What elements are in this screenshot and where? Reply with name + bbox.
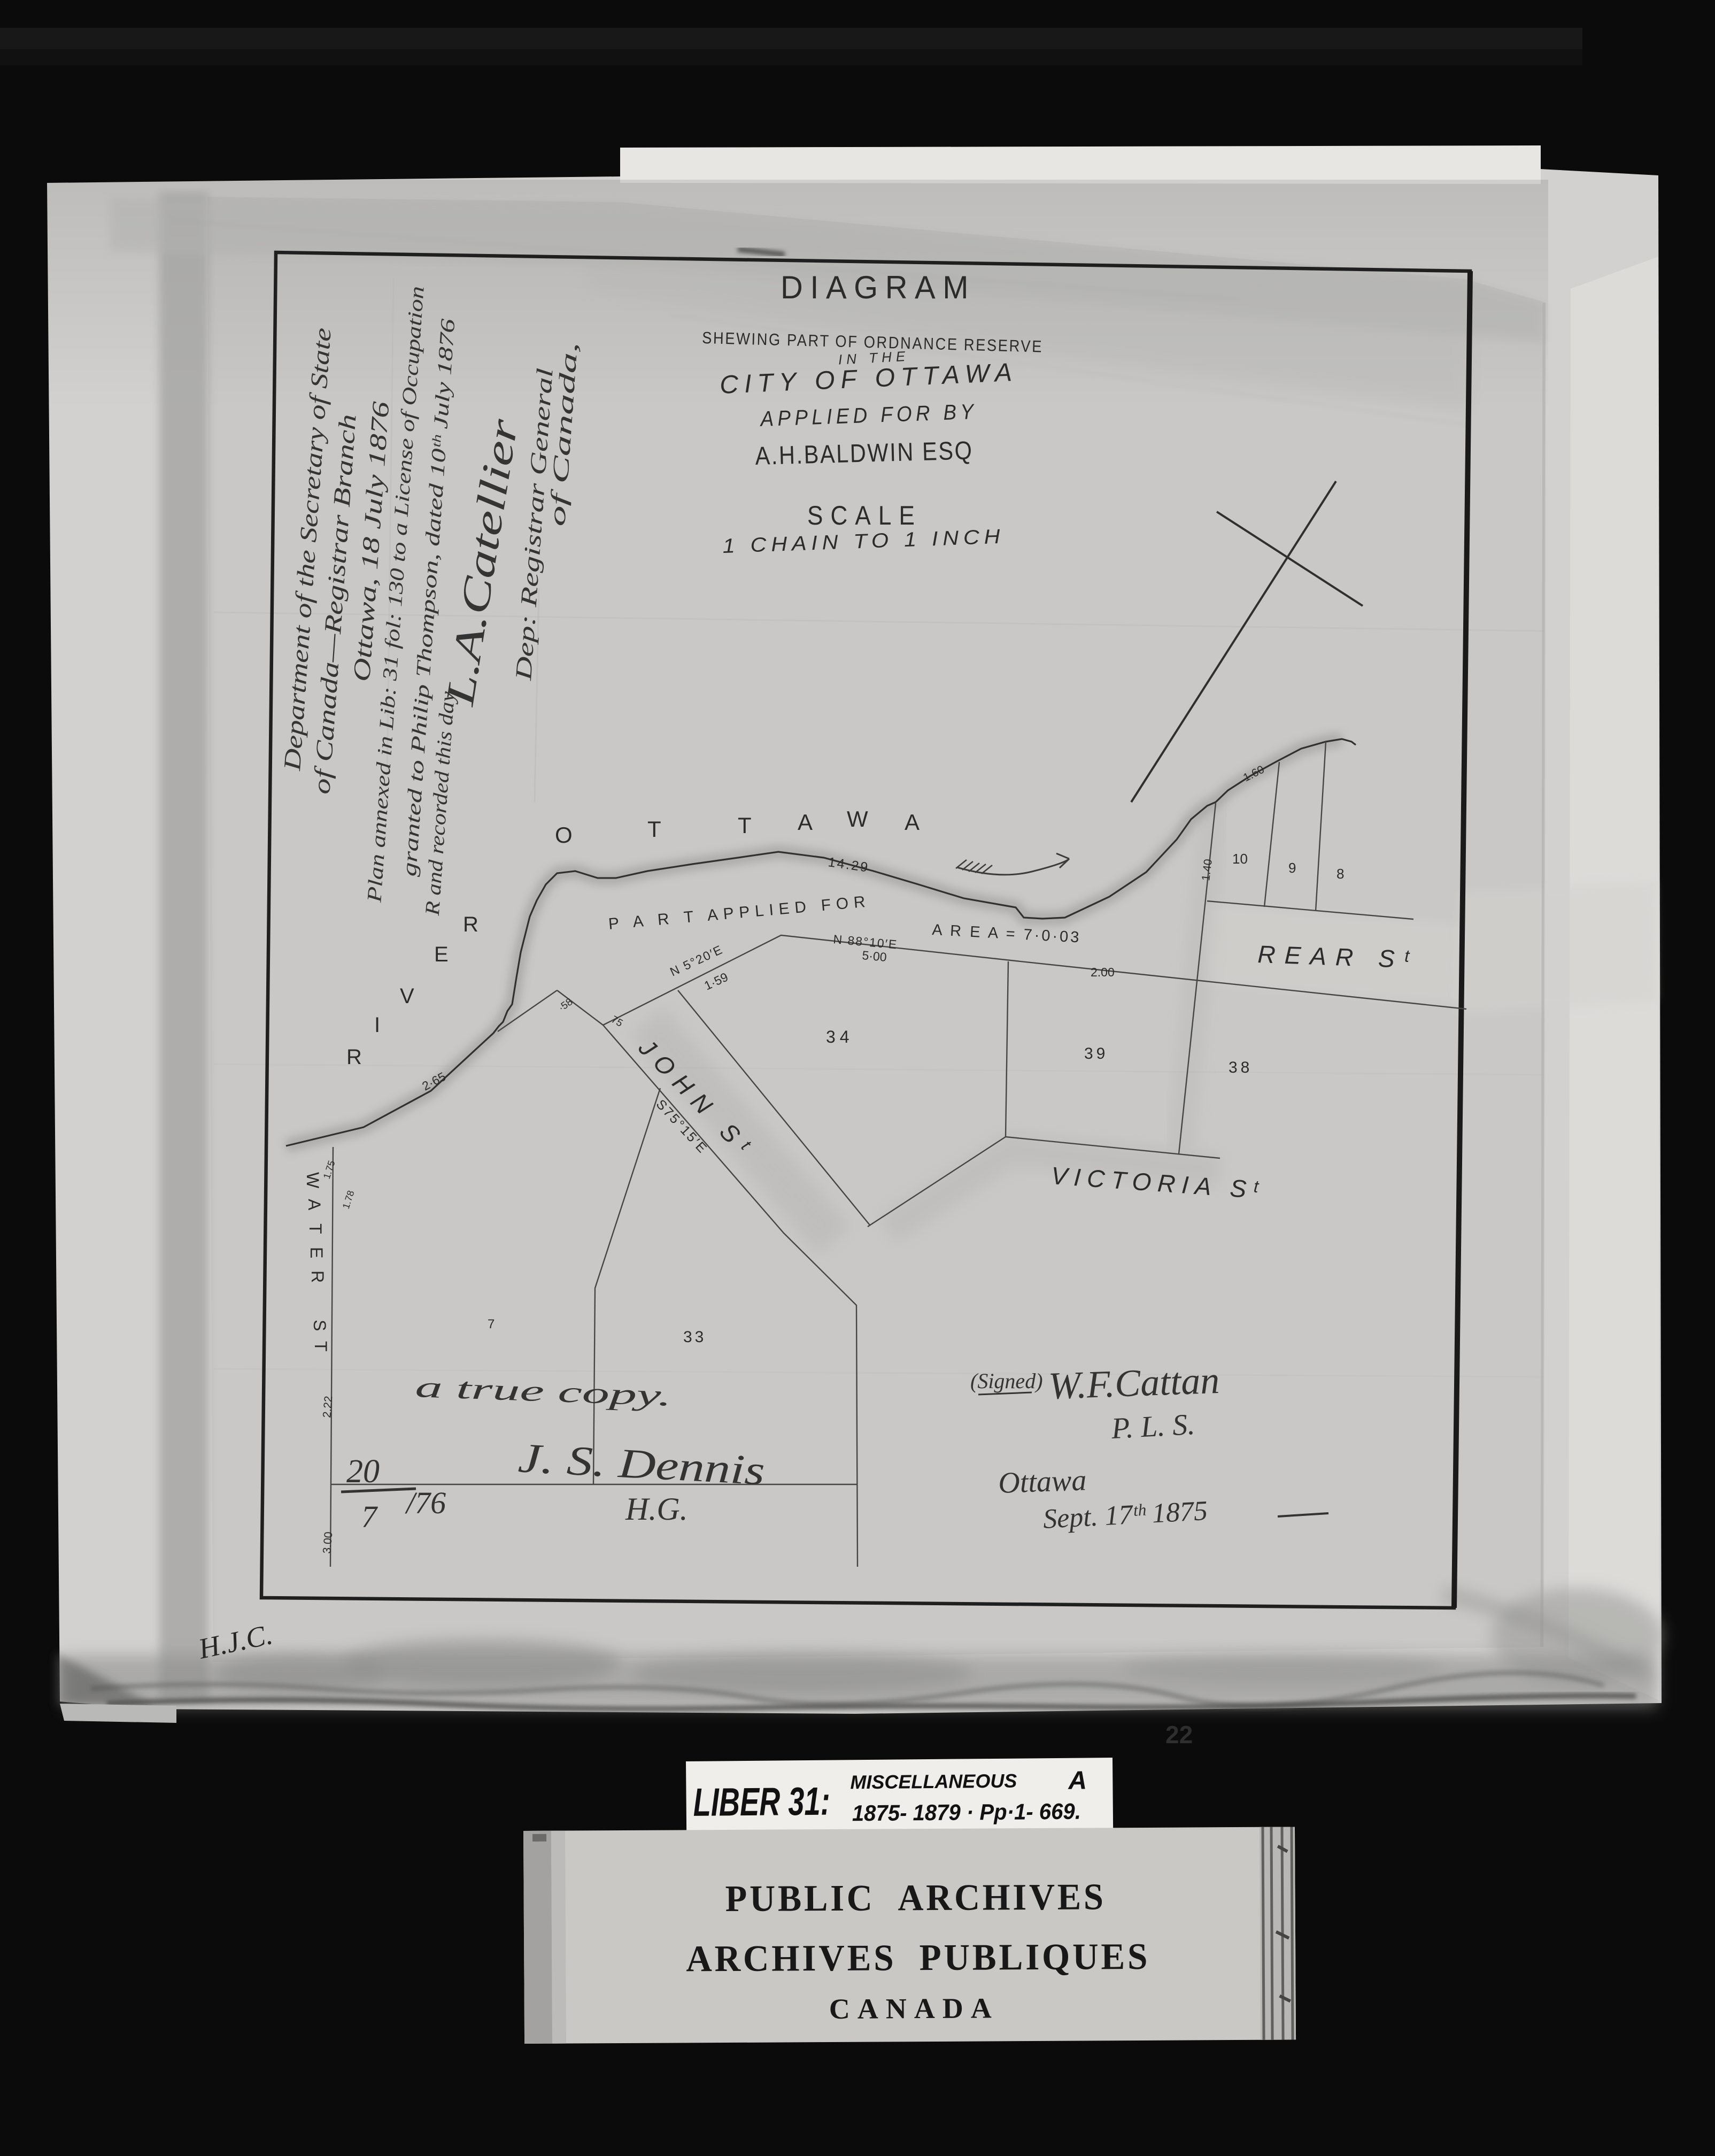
svg-text:T: T <box>738 813 752 838</box>
svg-text:DIAGRAM: DIAGRAM <box>781 269 976 305</box>
svg-text:LIBER 31:: LIBER 31: <box>693 1779 830 1824</box>
svg-text:A: A <box>798 810 813 835</box>
svg-text:T: T <box>311 1341 330 1352</box>
svg-text:H.G.: H.G. <box>625 1491 688 1527</box>
svg-text:3.00: 3.00 <box>321 1531 335 1554</box>
svg-text:34: 34 <box>826 1027 854 1046</box>
svg-text:A: A <box>1068 1766 1087 1795</box>
svg-text:33: 33 <box>683 1328 706 1346</box>
svg-text:9: 9 <box>1288 860 1296 876</box>
svg-text:O: O <box>555 822 573 848</box>
svg-text:E: E <box>434 943 449 966</box>
svg-text:1875- 1879 · Pp·1- 669.: 1875- 1879 · Pp·1- 669. <box>852 1799 1081 1826</box>
svg-text:Ottawa: Ottawa <box>998 1464 1087 1500</box>
svg-text:22: 22 <box>1165 1721 1193 1749</box>
svg-text:PUBLIC ARCHIVES: PUBLIC ARCHIVES <box>725 1876 1106 1920</box>
svg-text:(Signed): (Signed) <box>970 1369 1043 1393</box>
svg-text:E: E <box>307 1247 326 1258</box>
svg-text:MISCELLANEOUS: MISCELLANEOUS <box>850 1770 1017 1793</box>
svg-text:A: A <box>305 1199 324 1211</box>
svg-text:I: I <box>374 1013 380 1037</box>
svg-text:5·00: 5·00 <box>862 948 887 964</box>
svg-text:2.22: 2.22 <box>321 1396 335 1419</box>
svg-text:A.H.BALDWIN ESQ: A.H.BALDWIN ESQ <box>755 436 974 471</box>
svg-text:R: R <box>463 913 478 936</box>
svg-text:S: S <box>310 1320 329 1331</box>
svg-text:V: V <box>400 984 414 1008</box>
svg-text:W: W <box>303 1172 322 1189</box>
svg-text:W.F.Cattan: W.F.Cattan <box>1048 1359 1220 1407</box>
svg-text:2.00: 2.00 <box>1091 965 1115 979</box>
svg-text:38: 38 <box>1229 1059 1253 1076</box>
svg-text:T: T <box>647 817 661 842</box>
svg-text:SCALE: SCALE <box>807 500 922 530</box>
svg-text:T: T <box>306 1223 325 1234</box>
svg-text:CANADA: CANADA <box>829 1992 999 2025</box>
svg-text:10: 10 <box>1232 851 1248 867</box>
svg-text:REAR Sᵗ: REAR Sᵗ <box>1257 940 1418 973</box>
svg-text:8: 8 <box>1337 866 1344 882</box>
svg-text:7: 7 <box>361 1499 378 1534</box>
svg-text:R: R <box>308 1270 327 1283</box>
svg-text:7: 7 <box>488 1317 495 1331</box>
svg-text:ARCHIVES PUBLIQUES: ARCHIVES PUBLIQUES <box>686 1936 1150 1980</box>
svg-text:39: 39 <box>1084 1045 1108 1062</box>
svg-text:A: A <box>905 810 920 835</box>
svg-text:W: W <box>847 806 868 831</box>
svg-text:20: 20 <box>346 1453 380 1490</box>
svg-text:R: R <box>346 1045 362 1069</box>
svg-text:P. L. S.: P. L. S. <box>1110 1408 1195 1445</box>
svg-text:/76: /76 <box>405 1485 446 1520</box>
